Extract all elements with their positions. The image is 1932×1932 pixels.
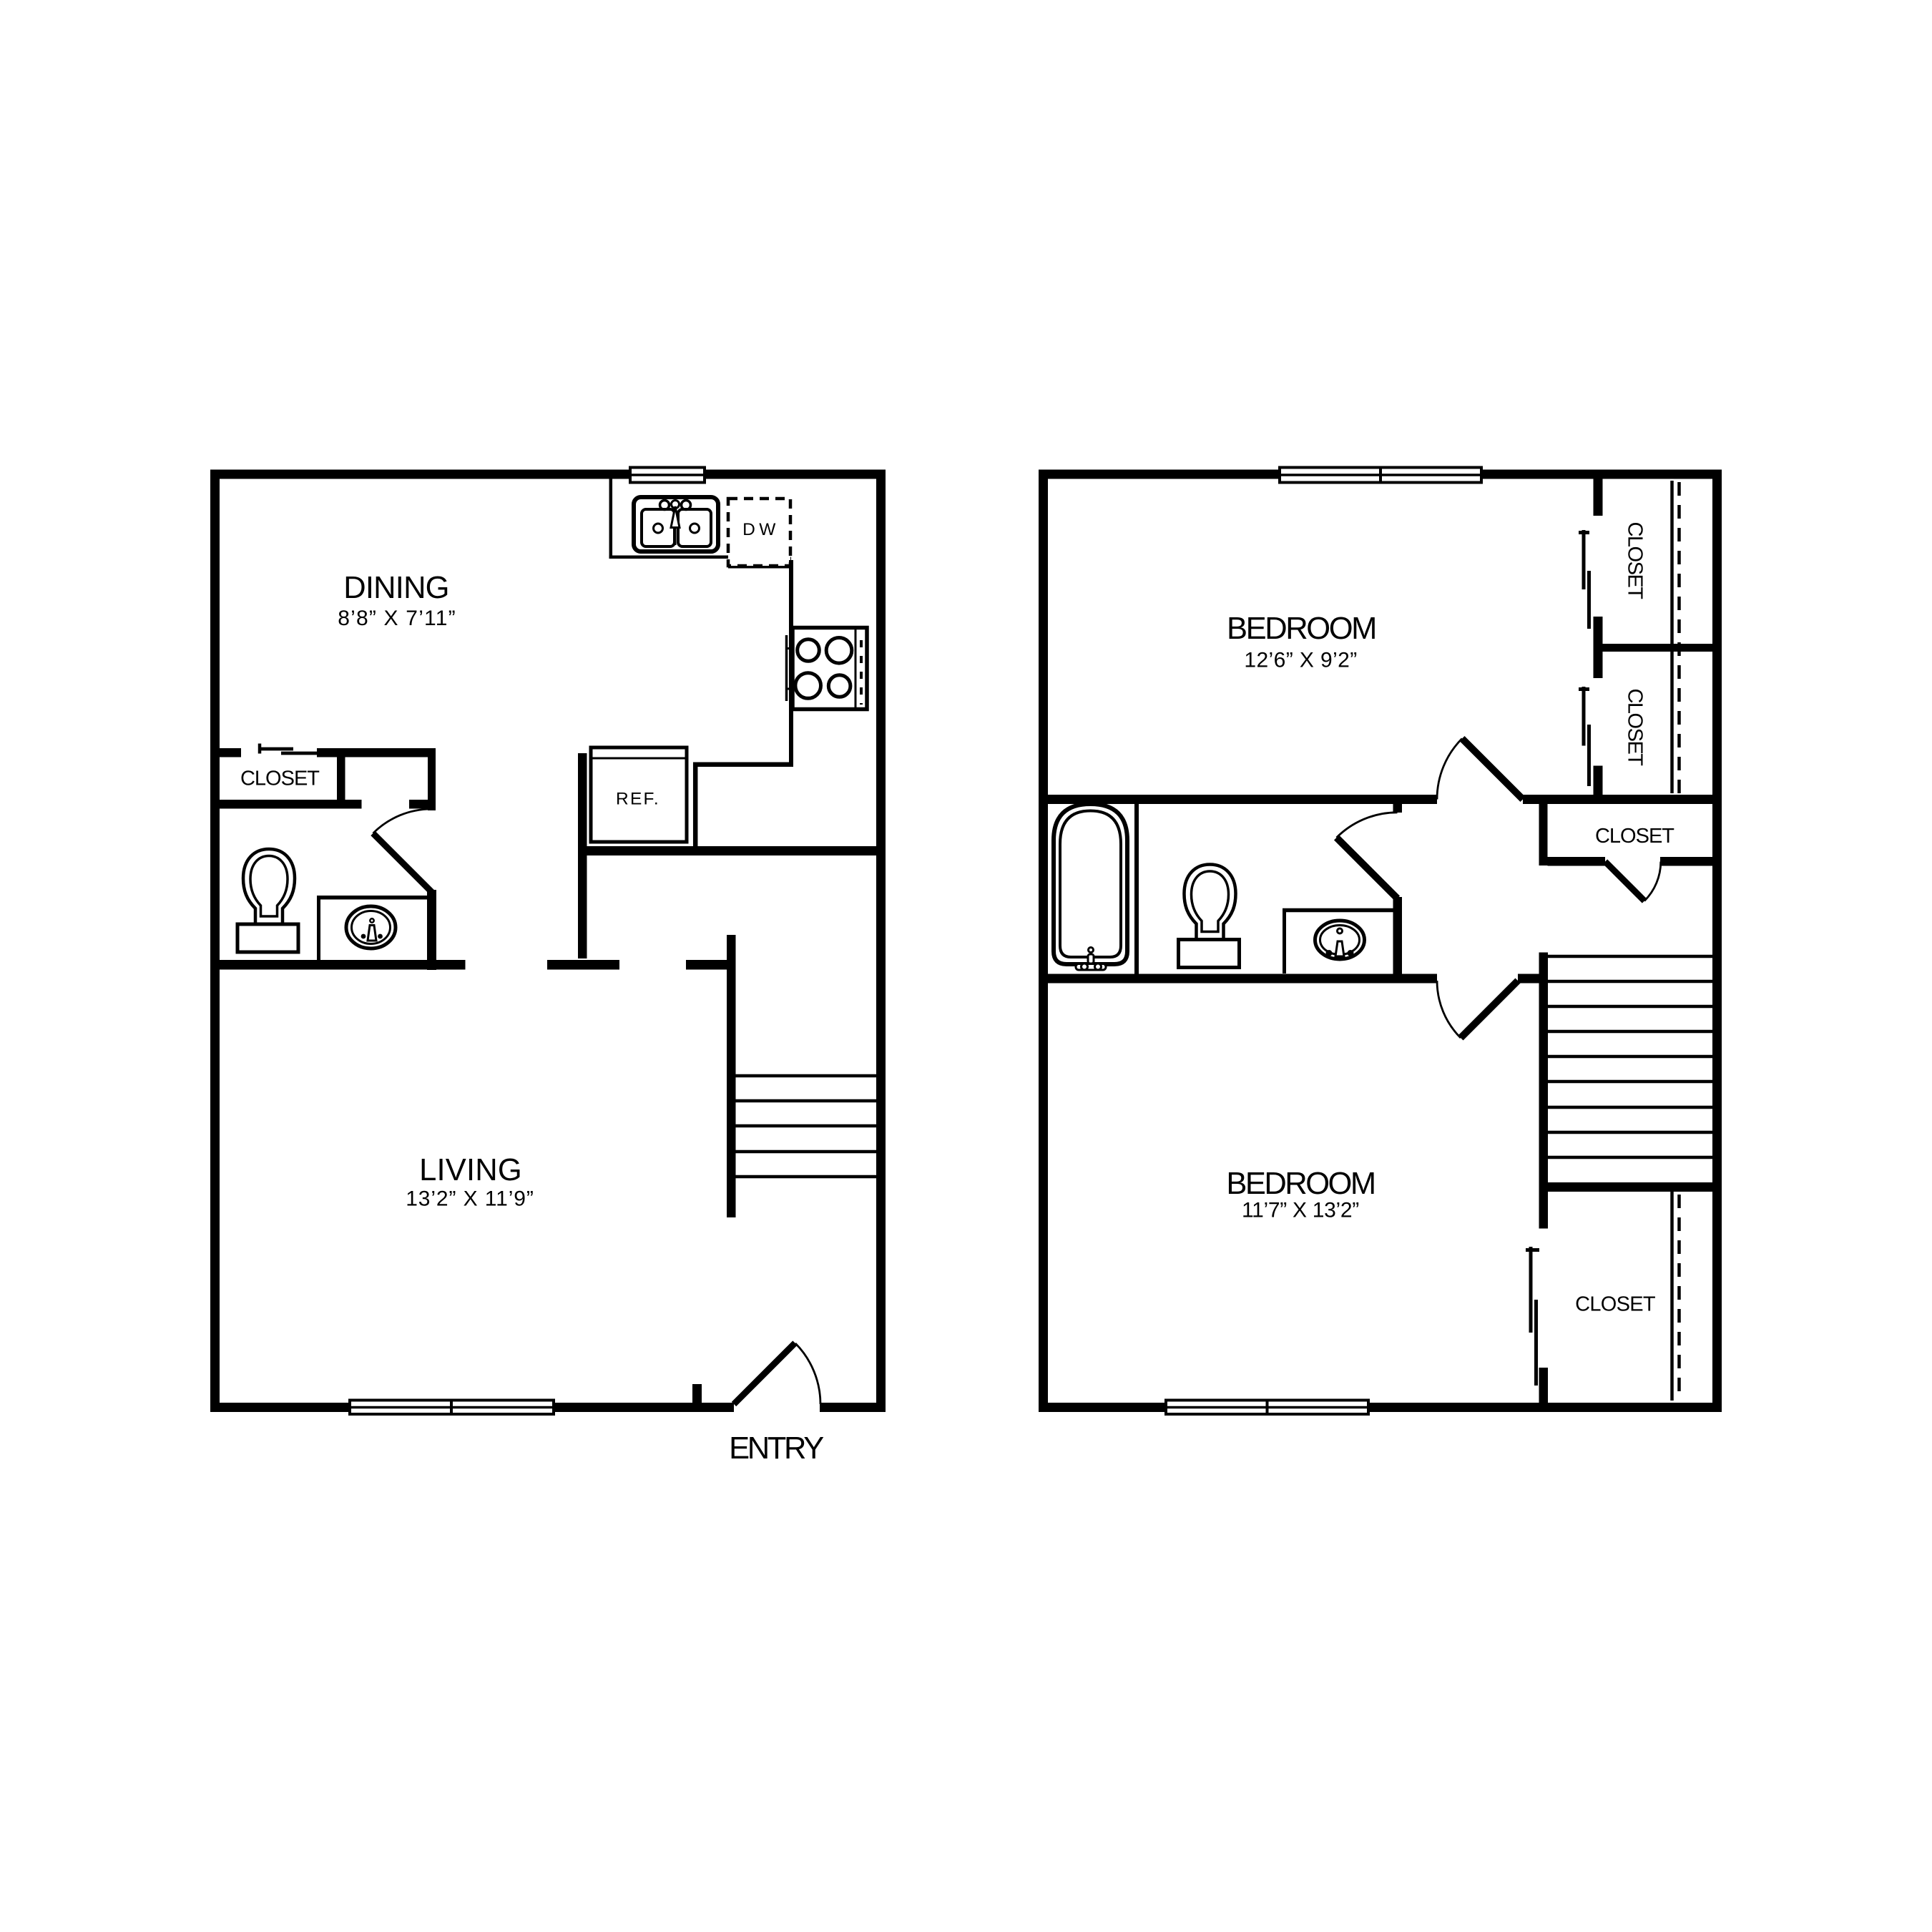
svg-text:CLOSET: CLOSET: [1595, 825, 1674, 848]
svg-text:BEDROOM: BEDROOM: [1227, 612, 1376, 646]
svg-text:CLOSET: CLOSET: [1575, 1293, 1656, 1316]
svg-text:ENTRY: ENTRY: [729, 1431, 824, 1466]
svg-text:8’8” X 7’11”: 8’8” X 7’11”: [338, 607, 456, 630]
svg-text:13’2” X 11’9”: 13’2” X 11’9”: [406, 1187, 534, 1210]
svg-text:BEDROOM: BEDROOM: [1226, 1167, 1374, 1201]
svg-text:CLOSET: CLOSET: [240, 768, 320, 790]
svg-text:DW: DW: [742, 520, 780, 539]
svg-text:11’7” X 13’2”: 11’7” X 13’2”: [1242, 1198, 1359, 1222]
svg-text:REF.: REF.: [616, 790, 660, 809]
svg-text:LIVING: LIVING: [419, 1153, 522, 1187]
svg-text:CLOSET: CLOSET: [1624, 521, 1647, 599]
svg-text:DINING: DINING: [343, 571, 448, 605]
svg-text:12’6” X 9’2”: 12’6” X 9’2”: [1244, 648, 1357, 672]
svg-text:CLOSET: CLOSET: [1624, 688, 1647, 766]
